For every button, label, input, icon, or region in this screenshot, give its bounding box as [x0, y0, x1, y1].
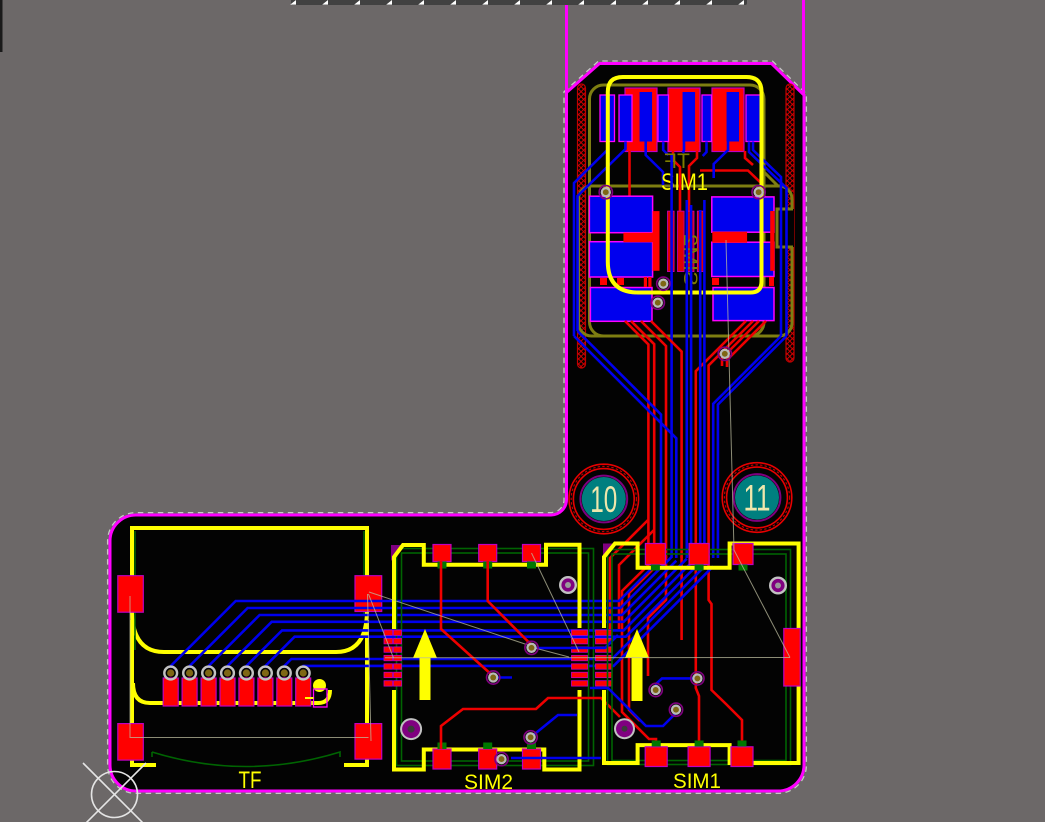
svg-text:SIM2: SIM2 — [464, 770, 513, 794]
svg-text:SIM1: SIM1 — [673, 769, 721, 793]
svg-text:11: 11 — [744, 478, 771, 519]
svg-text:TF: TF — [239, 767, 262, 794]
svg-text:SIM2: SIM2 — [679, 234, 700, 286]
svg-text:SIM1: SIM1 — [661, 169, 708, 196]
svg-text:10: 10 — [590, 479, 617, 520]
